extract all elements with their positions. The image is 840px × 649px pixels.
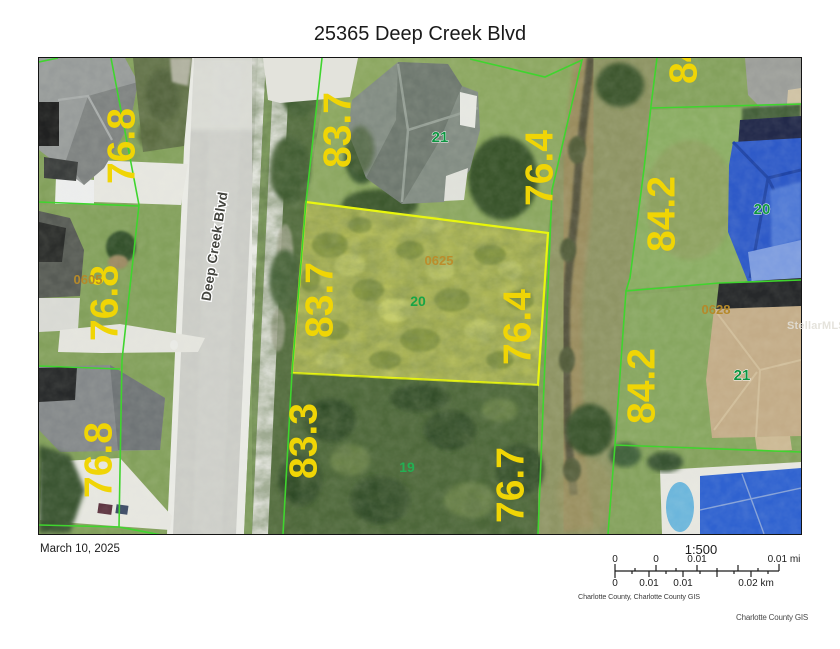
svg-text:0605: 0605: [74, 272, 103, 287]
svg-text:21: 21: [432, 129, 449, 146]
svg-text:0.01: 0.01: [673, 578, 693, 589]
svg-text:76.8: 76.8: [78, 422, 121, 498]
svg-text:20: 20: [410, 293, 426, 309]
svg-text:0: 0: [653, 554, 659, 565]
svg-text:83.3: 83.3: [283, 403, 326, 479]
svg-text:0: 0: [612, 578, 618, 589]
svg-text:0.01: 0.01: [639, 578, 659, 589]
svg-text:0.01: 0.01: [687, 554, 707, 565]
svg-text:19: 19: [399, 459, 415, 475]
svg-text:0: 0: [612, 554, 618, 565]
svg-text:21: 21: [734, 367, 751, 384]
svg-text:20: 20: [754, 201, 771, 218]
svg-text:0628: 0628: [702, 302, 731, 317]
svg-text:76.4: 76.4: [497, 289, 540, 365]
svg-text:76.7: 76.7: [490, 447, 533, 523]
svg-text:83.7: 83.7: [299, 262, 342, 338]
svg-text:83.7: 83.7: [317, 92, 360, 168]
svg-text:84.2: 84.2: [663, 58, 706, 84]
svg-text:84.2: 84.2: [641, 176, 684, 252]
svg-text:76.4: 76.4: [519, 130, 562, 206]
svg-text:0.01 mi: 0.01 mi: [768, 554, 801, 565]
svg-text:76.8: 76.8: [101, 108, 144, 184]
svg-text:84.2: 84.2: [621, 348, 664, 424]
svg-text:0625: 0625: [425, 253, 454, 268]
svg-text:0.02 km: 0.02 km: [738, 578, 774, 589]
